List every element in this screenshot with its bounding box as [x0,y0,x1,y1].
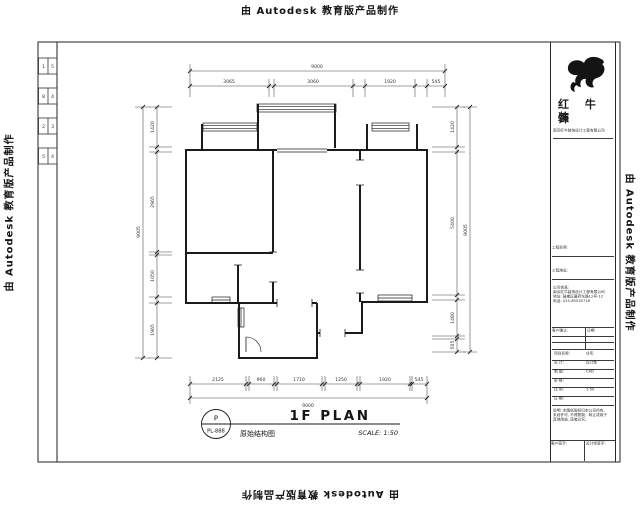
svg-text:5400: 5400 [450,217,456,229]
signoff-header-right: 日期: [587,328,596,333]
svg-text:960: 960 [257,377,266,383]
plan-cn-name: 原始结构图 [240,429,275,438]
project-address-label: 工程地址: [552,268,583,273]
svg-text:2965: 2965 [150,196,156,208]
svg-text:1250: 1250 [335,377,347,383]
project-name-row: 工程名称: [552,245,614,257]
svg-text:1420: 1420 [150,121,156,133]
field-value: 设计部 [586,360,597,365]
door-symbols [234,160,364,352]
svg-text:9005: 9005 [136,226,142,238]
signoff-empty-row-2 [552,342,614,350]
signoff-header-left: 客户确认: [552,328,569,333]
field-label: 设 计: [554,360,584,365]
svg-text:1920: 1920 [379,377,391,383]
window-symbols [203,104,412,327]
field-value: 住宅 [586,351,593,356]
svg-text:2125: 2125 [212,377,224,383]
svg-text:1965: 1965 [150,324,156,336]
field-label: 比 例: [554,387,584,392]
project-address-row: 工程地址: [552,268,614,280]
svg-text:5: 5 [42,154,45,160]
svg-text:1050: 1050 [150,270,156,282]
svg-text:5: 5 [51,64,54,70]
company-info-block: 公司信息: 南京红牛装饰设计工程有限公司 地址: 鼓楼区幕府东路12号-12 电… [553,285,614,325]
field-value: 1:50 [586,387,594,392]
svg-text:8: 8 [42,94,45,100]
svg-text:1: 1 [42,64,45,70]
dimension-ticks [141,69,472,400]
svg-text:545: 545 [432,79,441,85]
svg-text:2: 2 [42,124,45,130]
svg-text:9000: 9000 [311,64,323,70]
plan-scale: SCALE: 1:50 [358,429,398,437]
margin-boxes [39,58,58,164]
interior-walls [186,150,360,333]
company-name-small: 南京红牛装饰设计工程有限公司 [553,128,583,133]
designer-signature-label: 设计师签字: [586,441,606,446]
client-signature-label: 客户签字: [551,441,568,446]
field-label: 项目名称: [554,351,584,356]
field-label: 制 图: [554,369,584,374]
plan-title-texts: P PL-888 1F PLAN 原始结构图 SCALE: 1:50 [207,408,398,438]
svg-text:9005: 9005 [463,224,469,236]
brand-name-line2: 饰 [558,112,575,125]
field-label: 日 期: [554,396,584,401]
field-label: 审 核: [554,378,584,383]
svg-text:505: 505 [450,341,456,350]
svg-text:1920: 1920 [384,79,396,85]
field-row: 日 期: [552,396,614,406]
exterior-walls [186,104,427,358]
cad-sheet: 由 Autodesk 教育版产品制作 由 Autodesk 教育版产品制作 由 … [0,0,640,512]
signature-row: 客户签字: 设计师签字: [551,440,615,461]
svg-text:3065: 3065 [223,79,235,85]
title-circle-code: PL-888 [207,429,225,435]
margin-box-labels: 15 84 23 54 [42,64,54,160]
bull-logo-icon [561,56,607,96]
svg-text:3: 3 [51,124,54,130]
company-name-row: 南京红牛装饰设计工程有限公司 [553,128,613,139]
svg-text:4: 4 [51,154,54,160]
sheet-frame [38,42,620,462]
svg-text:545: 545 [415,377,424,383]
note-line-3: 其他用途, 违者必究。 [553,417,584,422]
title-circle-letter: P [214,415,218,423]
plan-title: 1F PLAN [289,408,370,424]
project-name-label: 工程名称: [552,245,583,250]
drawing-canvas: 15 84 23 54 [0,0,640,512]
field-value: CAD [586,369,594,374]
svg-text:1480: 1480 [450,312,456,324]
svg-text:1420: 1420 [450,121,456,133]
svg-text:4: 4 [51,94,54,100]
notes-block: 说明: 本图纸版权归本公司所有, 未经许可, 不得复制、转让或用于 其他用途, … [553,408,614,438]
svg-text:3060: 3060 [307,79,319,85]
svg-text:1710: 1710 [293,377,305,383]
info-line-3: 电话: 025-85530716 [553,299,584,304]
title-block: 红 牛 装 饰 南京红牛装饰设计工程有限公司 工程名称: 工程地址: 公司信息:… [550,42,616,462]
